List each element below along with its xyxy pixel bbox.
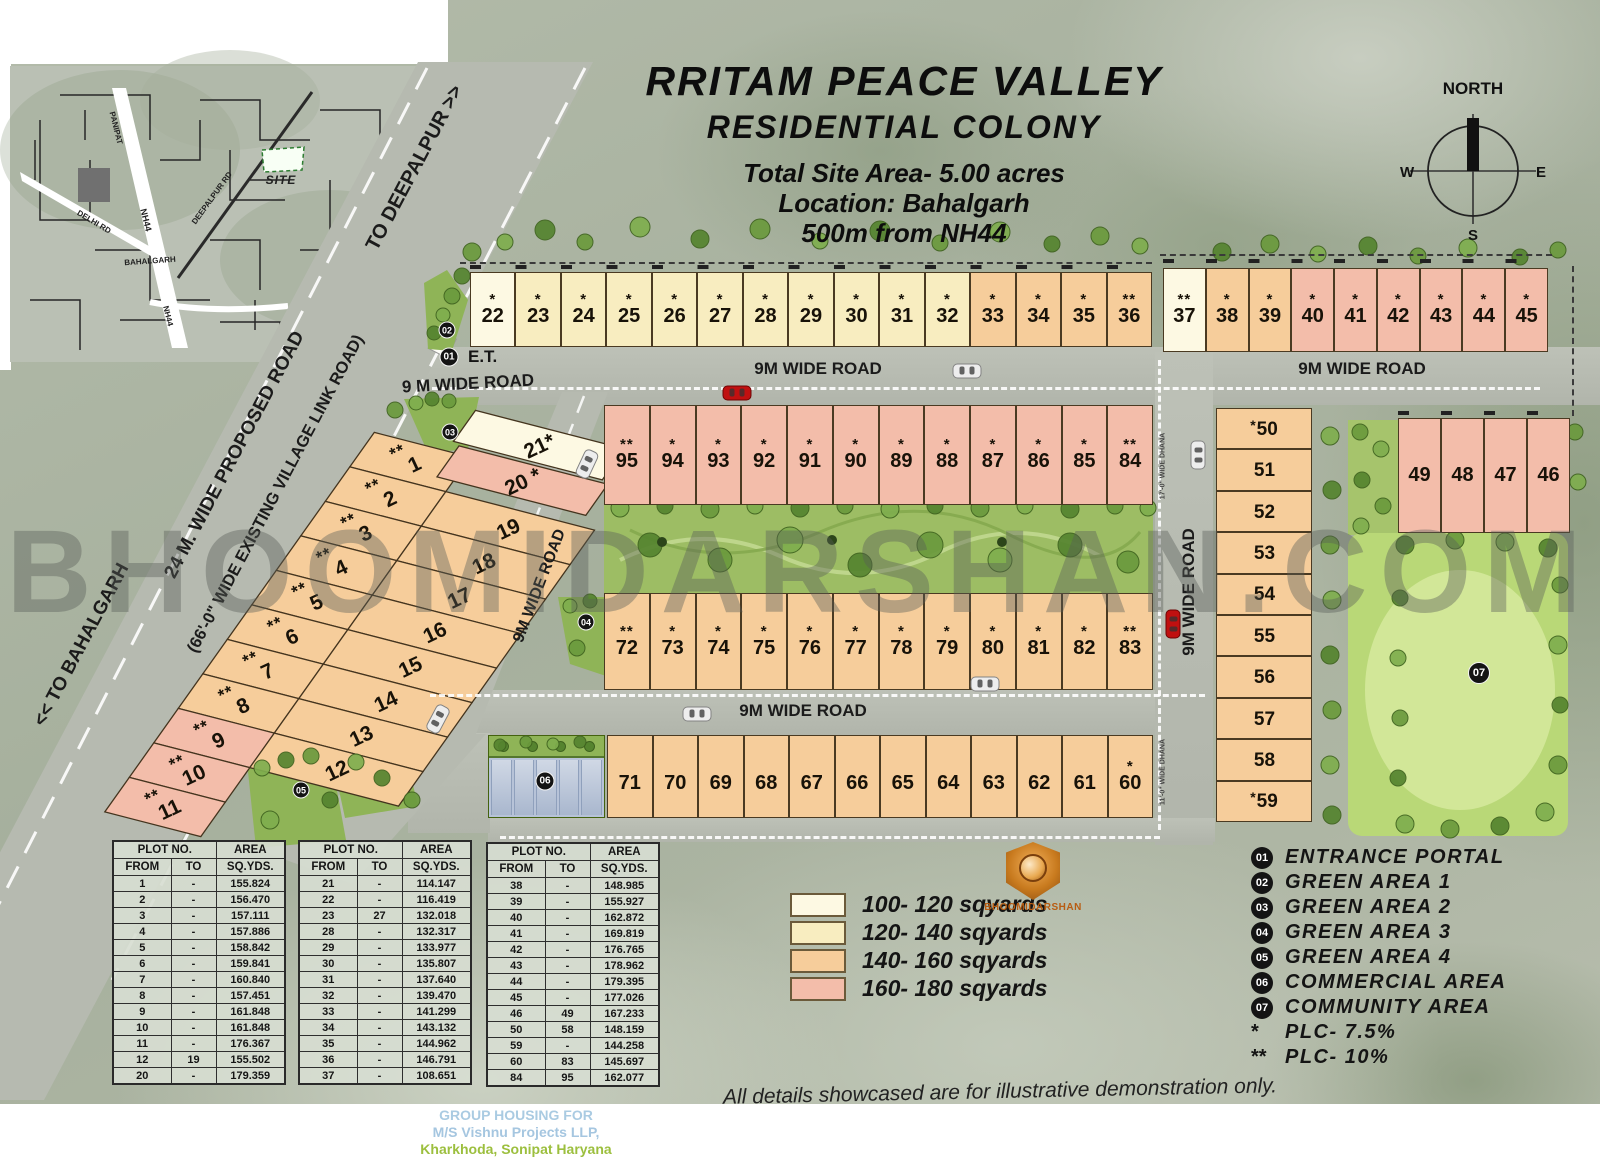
size-legend-swatch: [790, 893, 846, 917]
plot-9: [154, 708, 274, 767]
plc-symbol: *: [1251, 1021, 1273, 1044]
car-icon: [574, 448, 600, 481]
plot-47: 47: [1484, 418, 1527, 533]
plot-25: *25: [606, 272, 651, 347]
tree-icon: [1323, 701, 1341, 719]
plot-77: *77: [833, 593, 879, 690]
tree-icon: [254, 760, 270, 776]
area-legend-item: 05GREEN AREA 4: [1251, 945, 1506, 970]
car-icon: [683, 707, 712, 722]
plot-76: *76: [787, 593, 833, 690]
tree-icon: [1321, 536, 1339, 554]
tree-icon: [988, 548, 1012, 572]
plot-75: *75: [741, 593, 787, 690]
site-area: Total Site Area- 5.00 acres: [608, 158, 1200, 188]
tree-icon: [1352, 424, 1368, 440]
plot-92: *92: [741, 405, 787, 505]
tree-icon: [1552, 697, 1568, 713]
svg-text:**: **: [240, 647, 262, 671]
plot-61: 61: [1062, 735, 1108, 818]
road-label: 9M WIDE ROAD: [754, 359, 882, 379]
car-icon: [1166, 610, 1181, 639]
tree-icon: [1539, 539, 1557, 557]
plot-68: 68: [744, 735, 790, 818]
svg-text:12: 12: [322, 756, 353, 787]
size-legend-swatch: [790, 977, 846, 1001]
inset-delhi-rd-label: DELHI RD: [75, 208, 112, 235]
size-legend-item: 140- 160 sqyards: [790, 947, 1047, 974]
plot-63: 63: [971, 735, 1017, 818]
road-dash: [430, 694, 1205, 697]
table-row: 10-161.848: [113, 1020, 285, 1036]
svg-text:19: 19: [493, 514, 524, 545]
road-label: << TO BAHALGARH: [30, 560, 135, 730]
svg-text:**: **: [362, 474, 384, 498]
table-row: 1-155.824: [113, 876, 285, 892]
plot-row-ne_block: 49484746: [1398, 418, 1570, 533]
plot-81: *81: [1016, 593, 1062, 690]
tree-icon: [1321, 756, 1339, 774]
plot-43: *43: [1420, 268, 1463, 352]
inset-bahalgarh-label: BAHALGARH: [124, 255, 176, 268]
area-legend-item: 06COMMERCIAL AREA: [1251, 970, 1506, 995]
plot-82: *82: [1062, 593, 1108, 690]
plot-51: 51: [1216, 449, 1312, 490]
area-legend-label: GREEN AREA 3: [1285, 921, 1452, 944]
plot-22: *22: [470, 272, 515, 347]
tree-icon: [563, 599, 577, 613]
table-row: 22-116.419: [299, 892, 471, 908]
project-title: RRITAM PEACE VALLEY: [608, 58, 1200, 104]
size-legend-label: 160- 180 sqyards: [862, 975, 1047, 1002]
size-legend-label: 120- 140 sqyards: [862, 919, 1047, 946]
plot-12: [250, 733, 423, 806]
tree-icon: [527, 741, 538, 752]
plot-74: *74: [696, 593, 742, 690]
svg-text:3: 3: [355, 521, 375, 547]
project-subtitle: RESIDENTIAL COLONY: [608, 108, 1200, 146]
road-dash: [432, 387, 1540, 390]
road-dash: [500, 836, 1160, 839]
plot-88: *88: [924, 405, 970, 505]
top-left-margin: [0, 0, 448, 64]
plot-64: 64: [926, 735, 972, 818]
plot-65: 65: [880, 735, 926, 818]
tree-icon: [1375, 498, 1391, 514]
tree-icon: [387, 402, 403, 418]
svg-text:20 *: 20 *: [501, 463, 545, 500]
area-legend: 01ENTRANCE PORTAL02GREEN AREA 103GREEN A…: [1251, 845, 1506, 1070]
tree-icon: [374, 770, 390, 786]
svg-text:1: 1: [404, 452, 425, 478]
svg-text:7: 7: [257, 659, 277, 685]
plot-6: [227, 605, 347, 664]
svg-text:14: 14: [371, 686, 402, 717]
plot-60: *60: [1108, 735, 1154, 818]
boundary-dash: [460, 262, 1152, 264]
tree-icon: [436, 308, 450, 322]
table-row: 44-179.395: [487, 974, 659, 990]
plot-2: [325, 467, 446, 526]
plot-27: *27: [697, 272, 742, 347]
tree-icon: [322, 792, 338, 808]
boundary-dash: [1160, 254, 1552, 256]
tree-icon: [584, 741, 595, 752]
svg-text:**: **: [338, 509, 360, 533]
table-row: 43-178.962: [487, 958, 659, 974]
plot-62: 62: [1017, 735, 1063, 818]
plot-86: *86: [1016, 405, 1062, 505]
tree-icon: [917, 532, 943, 558]
plot-49: 49: [1398, 418, 1441, 533]
bush-icon: [827, 535, 837, 545]
tree-icon: [463, 243, 481, 261]
table-row: 8-157.451: [113, 988, 285, 1004]
tree-icon: [1261, 235, 1279, 253]
table-row: 2327132.018: [299, 908, 471, 924]
plot-8: [178, 674, 298, 733]
title-block: RRITAM PEACE VALLEY RESIDENTIAL COLONY T…: [608, 58, 1200, 248]
inset-site-label: SITE: [266, 173, 297, 187]
plot-40: *40: [1291, 268, 1334, 352]
location: Location: Bahalgarh: [608, 188, 1200, 218]
svg-text:6: 6: [282, 624, 302, 650]
tree-icon: [1390, 770, 1406, 786]
svg-text:16: 16: [420, 618, 451, 649]
plot-72: **72: [604, 593, 650, 690]
road-label: 9M WIDE ROAD: [739, 701, 867, 721]
tree-icon: [569, 640, 585, 656]
svg-text:5: 5: [306, 590, 327, 616]
compass-north-label: NORTH: [1443, 79, 1503, 98]
tree-icon: [278, 752, 294, 768]
table-row: 6-159.841: [113, 956, 285, 972]
svg-text:8: 8: [233, 693, 254, 719]
svg-text:**: **: [289, 578, 311, 602]
tree-icon: [777, 527, 803, 553]
area-legend-number: 05: [1251, 947, 1273, 969]
plot-57: 57: [1216, 698, 1312, 739]
site-plan-canvas: **1**2**3**4**5**6**7**8**9**10**1121*20…: [0, 0, 1600, 1162]
area-legend-item: 04GREEN AREA 3: [1251, 920, 1506, 945]
footer-line-3: Kharkhoda, Sonipat Haryana: [386, 1141, 646, 1158]
tree-icon: [1321, 646, 1339, 664]
logo-emblem-icon: [1006, 842, 1060, 900]
table-row: 35-144.962: [299, 1036, 471, 1052]
svg-text:18: 18: [469, 548, 500, 579]
plot-33: *33: [970, 272, 1015, 347]
table-row: 6083145.697: [487, 1054, 659, 1070]
area-legend-item: **PLC- 10%: [1251, 1045, 1506, 1070]
plot-50: *50: [1216, 408, 1312, 449]
plot-row-east_col: *505152535455565758*59: [1216, 408, 1312, 822]
plot-10: [129, 743, 250, 802]
tree-icon: [1390, 650, 1406, 666]
table-row: 20-179.359: [113, 1068, 285, 1085]
logo-text: BHOOMIDARSHAN: [968, 902, 1098, 913]
table-row: 9-161.848: [113, 1004, 285, 1020]
tree-icon: [261, 811, 279, 829]
area-legend-label: PLC- 7.5%: [1285, 1021, 1396, 1044]
plot-1: [350, 432, 471, 491]
plot-89: *89: [879, 405, 925, 505]
tree-icon: [1323, 591, 1341, 609]
boundary-dash: [1572, 266, 1574, 416]
plot-87: *87: [970, 405, 1016, 505]
plot-83: **83: [1107, 593, 1153, 690]
table-row: 1219155.502: [113, 1052, 285, 1068]
plc-symbol: **: [1251, 1046, 1273, 1069]
table-row: 45-177.026: [487, 990, 659, 1006]
area-legend-number: 01: [1251, 847, 1273, 869]
plot-38: *38: [1206, 268, 1249, 352]
tree-icon: [1536, 803, 1554, 821]
tree-icon: [1323, 806, 1341, 824]
table-row: 30-135.807: [299, 956, 471, 972]
table-row: 40-162.872: [487, 910, 659, 926]
area-legend-item: 01ENTRANCE PORTAL: [1251, 845, 1506, 870]
tree-icon: [1550, 242, 1566, 258]
road-label: 11'-0" WIDE DHANA: [1160, 739, 1167, 805]
size-legend-label: 140- 160 sqyards: [862, 947, 1047, 974]
distance-note: 500m from NH44: [608, 218, 1200, 248]
plot-73: *73: [650, 593, 696, 690]
tree-icon: [1359, 237, 1377, 255]
brand-logo: BHOOMIDARSHAN: [968, 842, 1098, 913]
plot-26: *26: [652, 272, 697, 347]
svg-text:**: **: [387, 440, 409, 464]
plot-37: **37: [1163, 268, 1206, 352]
svg-text:10: 10: [179, 760, 210, 791]
marker-06: 06: [536, 772, 555, 791]
area-legend-number: 06: [1251, 972, 1273, 994]
tree-icon: [303, 748, 319, 764]
table-row: 28-132.317: [299, 924, 471, 940]
marker-05: 05: [293, 782, 310, 799]
table-row: 31-137.640: [299, 972, 471, 988]
plot-row-mid_pink: **95*94*93*92*91*90*89*88*87*86*85**84: [604, 405, 1153, 505]
plot-45: *45: [1505, 268, 1548, 352]
car-icon: [971, 677, 1000, 692]
svg-text:11: 11: [155, 795, 185, 825]
tree-icon: [1549, 756, 1567, 774]
tree-icon: [1321, 427, 1339, 445]
table-row: 59-144.258: [487, 1038, 659, 1054]
tree-icon: [1354, 472, 1370, 488]
table-row: 33-141.299: [299, 1004, 471, 1020]
plot-84: **84: [1107, 405, 1153, 505]
marker-03: 03: [442, 424, 459, 441]
area-legend-label: GREEN AREA 4: [1285, 946, 1452, 969]
plot-row-mid_orange: **72*73*74*75*76*77*78*79*80*81*82**83: [604, 593, 1153, 690]
plot-59: *59: [1216, 781, 1312, 822]
plot-32: *32: [925, 272, 970, 347]
tree-icon: [454, 268, 470, 284]
tree-icon: [444, 288, 460, 304]
area-table-3: PLOT NO.AREAFROMTOSQ.YDS.38-148.98539-15…: [486, 842, 660, 1087]
plot-53: 53: [1216, 532, 1312, 573]
plot-36: **36: [1107, 272, 1152, 347]
tree-icon: [1117, 551, 1139, 573]
bottom-margin: [0, 1104, 1600, 1162]
area-legend-item: 02GREEN AREA 1: [1251, 870, 1506, 895]
plot-23: *23: [515, 272, 560, 347]
svg-text:15: 15: [395, 652, 426, 683]
road-stub: [408, 733, 490, 833]
plot-11: [105, 777, 226, 836]
table-row: 2-156.470: [113, 892, 285, 908]
plot-52: 52: [1216, 491, 1312, 532]
plot-5: [252, 570, 372, 629]
inset-deepalpur-rd-label: DEEPALPUR RD: [190, 170, 234, 226]
table-row: 42-176.765: [487, 942, 659, 958]
inset-nh44-label: NH44: [138, 208, 153, 233]
table-row: 34-143.132: [299, 1020, 471, 1036]
area-legend-label: PLC- 10%: [1285, 1046, 1389, 1069]
svg-text:21*: 21*: [520, 429, 559, 464]
plot-80: *80: [970, 593, 1016, 690]
marker-07: 07: [1468, 662, 1490, 684]
plot-31: *31: [879, 272, 924, 347]
area-legend-number: 07: [1251, 997, 1273, 1019]
bush-icon: [657, 537, 667, 547]
svg-text:**: **: [313, 543, 335, 567]
marker-01: 01: [440, 348, 459, 367]
tree-icon: [1392, 590, 1408, 606]
tree-icon: [1353, 518, 1369, 534]
svg-text:**: **: [166, 750, 188, 774]
compass-east-label: E: [1536, 164, 1546, 181]
area-legend-label: GREEN AREA 2: [1285, 896, 1452, 919]
plot-21: [454, 410, 625, 480]
svg-text:2: 2: [380, 486, 400, 512]
tree-icon: [1570, 474, 1586, 490]
plot-row-north_a: *22*23*24*25*26*27*28*29*30*31*32*33*34*…: [470, 272, 1152, 347]
tree-icon: [1396, 815, 1414, 833]
area-legend-number: 03: [1251, 897, 1273, 919]
plot-24: *24: [561, 272, 606, 347]
car-icon: [1191, 441, 1206, 470]
plot-4: [276, 536, 397, 595]
inset-panipat-label: PANIPAT: [108, 111, 125, 146]
plot-54: 54: [1216, 574, 1312, 615]
dimension-ticks: [1398, 411, 1570, 415]
area-legend-item: 03GREEN AREA 2: [1251, 895, 1506, 920]
table-row: 4649167.233: [487, 1006, 659, 1022]
table-row: 38-148.985: [487, 878, 659, 894]
tree-icon: [1323, 481, 1341, 499]
area-legend-label: COMMUNITY AREA: [1285, 996, 1490, 1019]
table-row: 8495162.077: [487, 1070, 659, 1087]
svg-text:**: **: [215, 681, 237, 705]
area-legend-label: GREEN AREA 1: [1285, 871, 1452, 894]
tree-icon: [1392, 710, 1408, 726]
car-icon: [953, 364, 982, 379]
inset-map: [0, 50, 440, 362]
plot-66: 66: [835, 735, 881, 818]
tree-icon: [638, 533, 662, 557]
plot-28: *28: [743, 272, 788, 347]
tree-icon: [348, 754, 364, 770]
tree-icon: [1446, 531, 1464, 549]
table-row: 32-139.470: [299, 988, 471, 1004]
table-row: 36-146.791: [299, 1052, 471, 1068]
table-row: 29-133.977: [299, 940, 471, 956]
svg-text:9: 9: [208, 728, 228, 754]
svg-text:**: **: [142, 785, 164, 809]
road-label: 17'-0" WIDE DHANA: [1160, 433, 1167, 499]
svg-text:**: **: [264, 612, 286, 636]
plot-35: *35: [1061, 272, 1106, 347]
plot-29: *29: [788, 272, 833, 347]
plot-70: 70: [653, 735, 699, 818]
size-legend-item: 160- 180 sqyards: [790, 975, 1047, 1002]
plot-69: 69: [698, 735, 744, 818]
tree-icon: [1549, 636, 1567, 654]
plot-34: *34: [1016, 272, 1061, 347]
plot-56: 56: [1216, 656, 1312, 697]
dimension-ticks: [1163, 259, 1548, 263]
commercial-green-strip: [489, 736, 604, 758]
size-legend-swatch: [790, 949, 846, 973]
tree-icon: [1396, 536, 1414, 554]
size-legend-swatch: [790, 921, 846, 945]
area-legend-item: *PLC- 7.5%: [1251, 1020, 1506, 1045]
plot-19: [421, 492, 594, 565]
tree-icon: [1058, 533, 1082, 557]
area-legend-item: 07COMMUNITY AREA: [1251, 995, 1506, 1020]
table-row: 39-155.927: [487, 894, 659, 910]
area-legend-label: ENTRANCE PORTAL: [1285, 846, 1505, 869]
plot-30: *30: [834, 272, 879, 347]
plot-42: *42: [1377, 268, 1420, 352]
footer-block: GROUP HOUSING FOR M/S Vishnu Projects LL…: [386, 1107, 646, 1158]
table-row: 7-160.840: [113, 972, 285, 988]
tree-icon: [583, 594, 597, 608]
svg-text:17: 17: [444, 583, 475, 614]
tree-icon: [498, 741, 509, 752]
compass: NORTH W E S: [1398, 72, 1548, 244]
table-row: 3-157.111: [113, 908, 285, 924]
tree-icon: [555, 741, 566, 752]
road-label: 9M WIDE ROAD: [1298, 359, 1426, 379]
table-row: 5-158.842: [113, 940, 285, 956]
plot-93: *93: [696, 405, 742, 505]
plot-16: [348, 595, 521, 668]
car-icon: [723, 386, 752, 401]
svg-text:13: 13: [346, 721, 377, 752]
road-label: TO DEEPALPUR >>: [362, 81, 469, 254]
dimension-ticks: [470, 265, 1152, 269]
area-legend-number: 04: [1251, 922, 1273, 944]
plot-7: [203, 639, 323, 698]
area-legend-label: COMMERCIAL AREA: [1285, 971, 1506, 994]
plot-3: [301, 501, 422, 560]
plot-row-north_b: **37*38*39*40*41*42*43*44*45: [1163, 268, 1548, 352]
plot-44: *44: [1462, 268, 1505, 352]
tree-icon: [1441, 820, 1459, 838]
table-row: 4-157.886: [113, 924, 285, 940]
area-table-2: PLOT NO.AREAFROMTOSQ.YDS.21-114.14722-11…: [298, 840, 472, 1085]
left-margin: [0, 64, 11, 370]
tree-icon: [708, 548, 732, 572]
table-row: 41-169.819: [487, 926, 659, 942]
plot-85: *85: [1062, 405, 1108, 505]
plot-95: **95: [604, 405, 650, 505]
compass-south-label: S: [1468, 227, 1478, 244]
plot-55: 55: [1216, 615, 1312, 656]
marker-04: 04: [578, 614, 595, 631]
